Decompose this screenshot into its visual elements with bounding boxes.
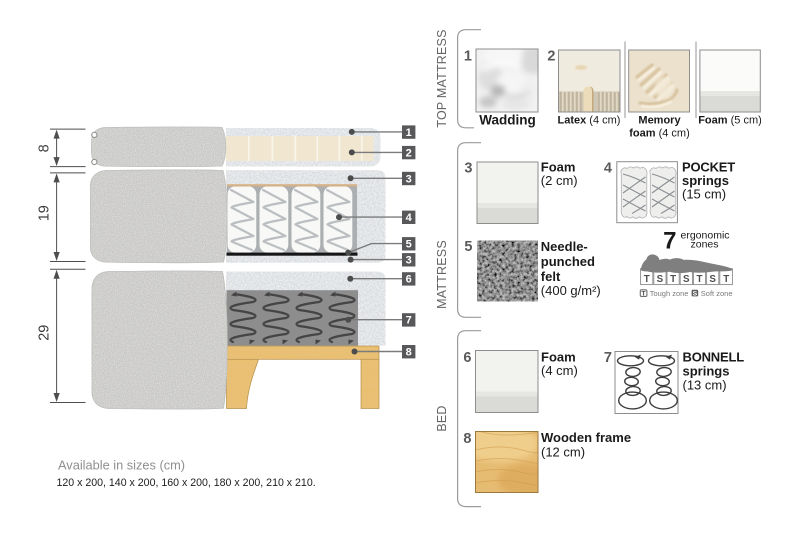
svg-text:2: 2 xyxy=(406,147,412,159)
svg-text:springs: springs xyxy=(683,363,730,378)
svg-text:MATTRESS: MATTRESS xyxy=(435,240,449,309)
svg-text:6: 6 xyxy=(463,350,471,366)
svg-text:8: 8 xyxy=(463,431,471,447)
svg-text:S: S xyxy=(709,274,716,285)
svg-text:S: S xyxy=(683,274,690,285)
svg-text:7: 7 xyxy=(406,315,412,327)
svg-text:5: 5 xyxy=(406,239,412,251)
svg-text:S: S xyxy=(657,274,664,285)
svg-text:4: 4 xyxy=(604,161,612,177)
svg-text:punched: punched xyxy=(541,254,595,269)
svg-text:120 x 200, 140 x 200, 160 x 20: 120 x 200, 140 x 200, 160 x 200, 180 x 2… xyxy=(57,477,316,489)
svg-text:1: 1 xyxy=(406,127,412,139)
svg-text:19: 19 xyxy=(37,205,53,221)
svg-text:Tough zone: Tough zone xyxy=(650,289,689,298)
svg-text:2: 2 xyxy=(547,49,555,65)
svg-text:TOP MATTRESS: TOP MATTRESS xyxy=(435,29,449,127)
svg-text:(2 cm): (2 cm) xyxy=(541,173,578,188)
svg-text:Memory: Memory xyxy=(638,115,681,127)
svg-text:7: 7 xyxy=(663,227,676,254)
svg-text:(400 g/m²): (400 g/m²) xyxy=(541,283,601,298)
svg-text:Foam (5 cm): Foam (5 cm) xyxy=(698,115,762,127)
svg-text:Soft zone: Soft zone xyxy=(701,289,733,298)
svg-text:Available in sizes (cm): Available in sizes (cm) xyxy=(58,457,185,472)
svg-text:T: T xyxy=(644,274,650,285)
svg-text:Wadding: Wadding xyxy=(479,112,536,127)
svg-text:felt: felt xyxy=(541,269,561,284)
svg-text:Wooden frame: Wooden frame xyxy=(541,430,631,445)
svg-text:3: 3 xyxy=(406,255,412,267)
svg-text:T: T xyxy=(697,274,703,285)
svg-text:8: 8 xyxy=(406,347,412,359)
svg-text:29: 29 xyxy=(37,325,53,341)
svg-text:foam (4 cm): foam (4 cm) xyxy=(629,128,690,140)
svg-text:(12 cm): (12 cm) xyxy=(541,444,585,459)
svg-text:5: 5 xyxy=(464,239,472,255)
svg-text:Latex (4 cm): Latex (4 cm) xyxy=(558,115,621,127)
svg-text:BONNELL: BONNELL xyxy=(683,350,745,365)
svg-text:1: 1 xyxy=(464,49,472,65)
svg-text:BED: BED xyxy=(435,405,449,431)
svg-text:Needle-: Needle- xyxy=(541,239,588,254)
svg-text:(15 cm): (15 cm) xyxy=(682,186,726,201)
svg-text:(4 cm): (4 cm) xyxy=(541,363,578,378)
svg-text:S: S xyxy=(693,290,698,297)
svg-text:3: 3 xyxy=(406,173,412,185)
svg-text:7: 7 xyxy=(604,350,612,366)
svg-text:(13 cm): (13 cm) xyxy=(683,377,727,392)
svg-text:T: T xyxy=(723,274,729,285)
svg-text:zones: zones xyxy=(690,239,718,251)
svg-text:4: 4 xyxy=(406,212,413,224)
svg-text:3: 3 xyxy=(464,161,472,177)
svg-text:T: T xyxy=(670,274,676,285)
svg-text:8: 8 xyxy=(37,144,53,152)
svg-text:6: 6 xyxy=(406,274,412,286)
